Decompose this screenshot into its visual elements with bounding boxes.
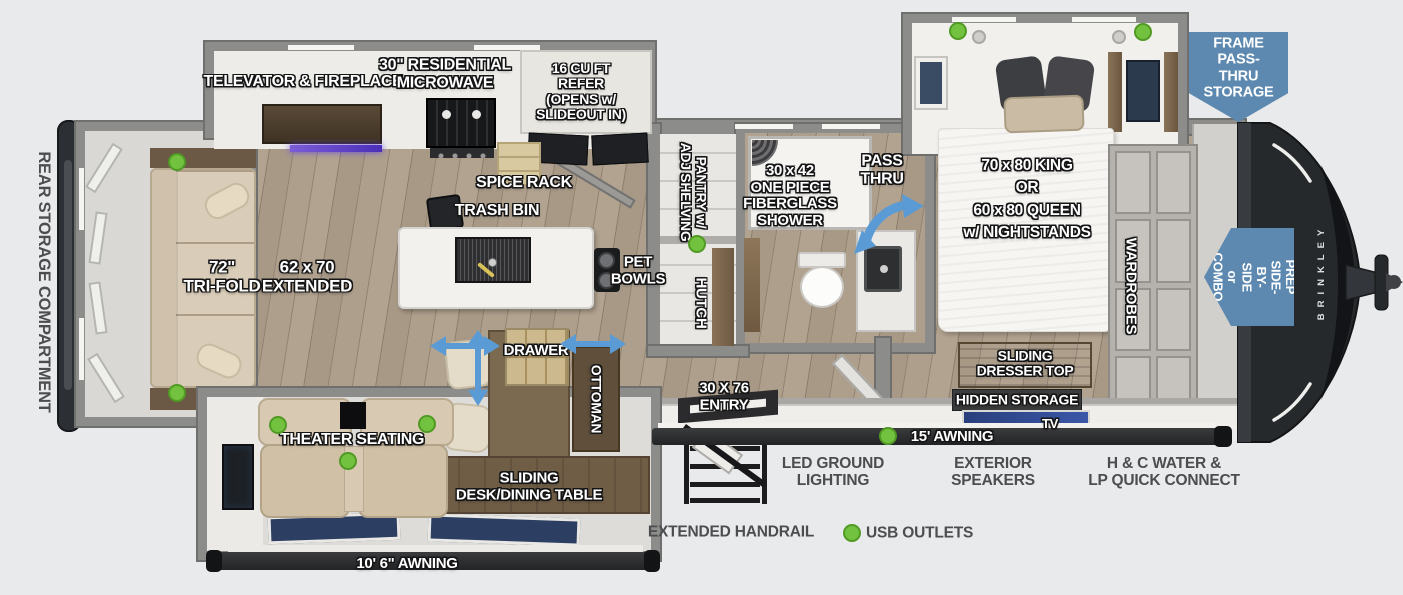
sofa-label: 72" TRI-FOLD (184, 258, 261, 295)
rear-slide-window-slit (79, 168, 84, 230)
table-slide-arrows (428, 328, 678, 413)
headboard-pillow-tan (1003, 95, 1084, 134)
handrail-label: EXTENDED HANDRAIL (648, 523, 814, 540)
entry-step (690, 498, 760, 503)
pantry-left-wall (648, 124, 660, 356)
table-label: SLIDING DESK/DINING TABLE (456, 471, 602, 504)
usb-outlet-dot (688, 235, 706, 253)
rear-slide-window-slit (79, 318, 84, 380)
bed-label: 70 x 80 KING OR 60 x 80 QUEEN w/ NIGHTST… (963, 155, 1090, 245)
entry-step (690, 482, 760, 487)
awning-end-cap (644, 550, 660, 572)
usb-outlet-dot (949, 22, 967, 40)
sofa-trim-top (150, 148, 256, 168)
refrigerator-label: 16 CU FT REFER (OPENS w/ SLIDEOUT IN) (536, 61, 626, 123)
wall-slit (822, 124, 880, 129)
theater-console-screen (340, 402, 366, 429)
theater-tv (222, 444, 254, 510)
hidden-storage-label: HIDDEN STORAGE (956, 392, 1078, 407)
theater-label: THEATER SEATING (280, 431, 424, 449)
bedroom-wardrobe-pillar (1164, 52, 1178, 132)
dresser-label: SLIDING DRESSER TOP (977, 349, 1074, 380)
usb-outlet-dot (269, 416, 287, 434)
wall-slit (1072, 17, 1136, 22)
bedroom-sconce (972, 30, 986, 44)
theater-seat (358, 444, 448, 518)
fireplace-led-glow (290, 145, 382, 152)
microwave-label: 30" RESIDENTIAL MICROWAVE (379, 56, 511, 91)
entry-label: 30 X 76 ENTRY (699, 381, 749, 414)
rear-cap-highlight (64, 160, 72, 390)
usb-outlet-dot (168, 153, 186, 171)
wall-slit (474, 45, 540, 50)
wall-slit (735, 124, 793, 129)
stove-knob-strip (430, 148, 494, 158)
dinette-label: 62 x 70 EXTENDED (262, 258, 352, 295)
awning-10-6-label: 10' 6" AWNING (356, 556, 457, 573)
usb-outlet-dot (879, 427, 897, 445)
stove-cooktop (426, 98, 496, 148)
awning-15-label: 15' AWNING (911, 429, 994, 446)
usb-legend-label: USB OUTLETS (866, 524, 973, 541)
theater-rug (428, 513, 581, 546)
wall-slit (952, 17, 1016, 22)
wardrobes-label: WARDROBES (1122, 238, 1139, 334)
wardrobe-door (1156, 151, 1192, 214)
wardrobe-door (1115, 151, 1151, 214)
speakers-label: EXTERIOR SPEAKERS (951, 455, 1035, 489)
usb-outlet-dot (339, 452, 357, 470)
awning-end-cap (206, 550, 222, 572)
pass-thru-arrow (852, 192, 924, 256)
bedroom-window-glass (920, 62, 942, 104)
stove-burner (442, 110, 451, 119)
bedroom-wardrobe-pillar (1108, 52, 1122, 132)
island-faucet (488, 258, 497, 267)
bedroom-sconce (1112, 30, 1126, 44)
bedroom-tv-screen (1126, 60, 1160, 122)
rear-storage-label: REAR STORAGE COMPARTMENT (35, 151, 53, 412)
hutch-cabinet (712, 248, 734, 346)
drop-frame-callout-label: DROP-FRAME PASS-THRU STORAGE (1203, 19, 1273, 100)
bath-linen-cabinet (744, 238, 760, 332)
brand-name: BRINKLEY (1317, 224, 1327, 321)
toilet-bowl (800, 266, 844, 308)
wardrobe-door (1156, 288, 1192, 351)
usb-legend-dot (843, 524, 861, 542)
pet-bowls-label: PET BOWLS (611, 255, 665, 288)
stove-burner (472, 110, 481, 119)
wardrobe-door (1156, 219, 1192, 282)
vanity-faucet (880, 265, 888, 273)
ground-lighting-label: LED GROUND LIGHTING (782, 455, 884, 489)
refrigerator-door (591, 133, 648, 166)
wall-slit (288, 45, 354, 50)
awning-end-cap (1214, 426, 1232, 447)
pantry-label: PANTRY w/ ADJ SHELVING (678, 143, 709, 242)
usb-outlet-dot (418, 415, 436, 433)
televator-fireplace-cabinet (262, 104, 382, 144)
hutch-label: HUTCH (692, 278, 709, 329)
usb-outlet-dot (168, 384, 186, 402)
water-lp-label: H & C WATER & LP QUICK CONNECT (1088, 455, 1240, 489)
usb-outlet-dot (1134, 23, 1152, 41)
theater-seat (260, 444, 350, 518)
trash-bin-label: TRASH BIN (455, 202, 539, 220)
spice-rack-label: SPICE RACK (476, 174, 572, 192)
shower-label: 30 x 42 ONE PIECE FIBERGLASS SHOWER (743, 163, 837, 229)
pass-thru-label: PASS THRU (860, 152, 903, 187)
floorplan-diagram: BRINKLEY DR (0, 0, 1403, 595)
televator-label: TELEVATOR & FIREPLACE (203, 73, 402, 91)
tv-label: TV (1042, 417, 1058, 431)
